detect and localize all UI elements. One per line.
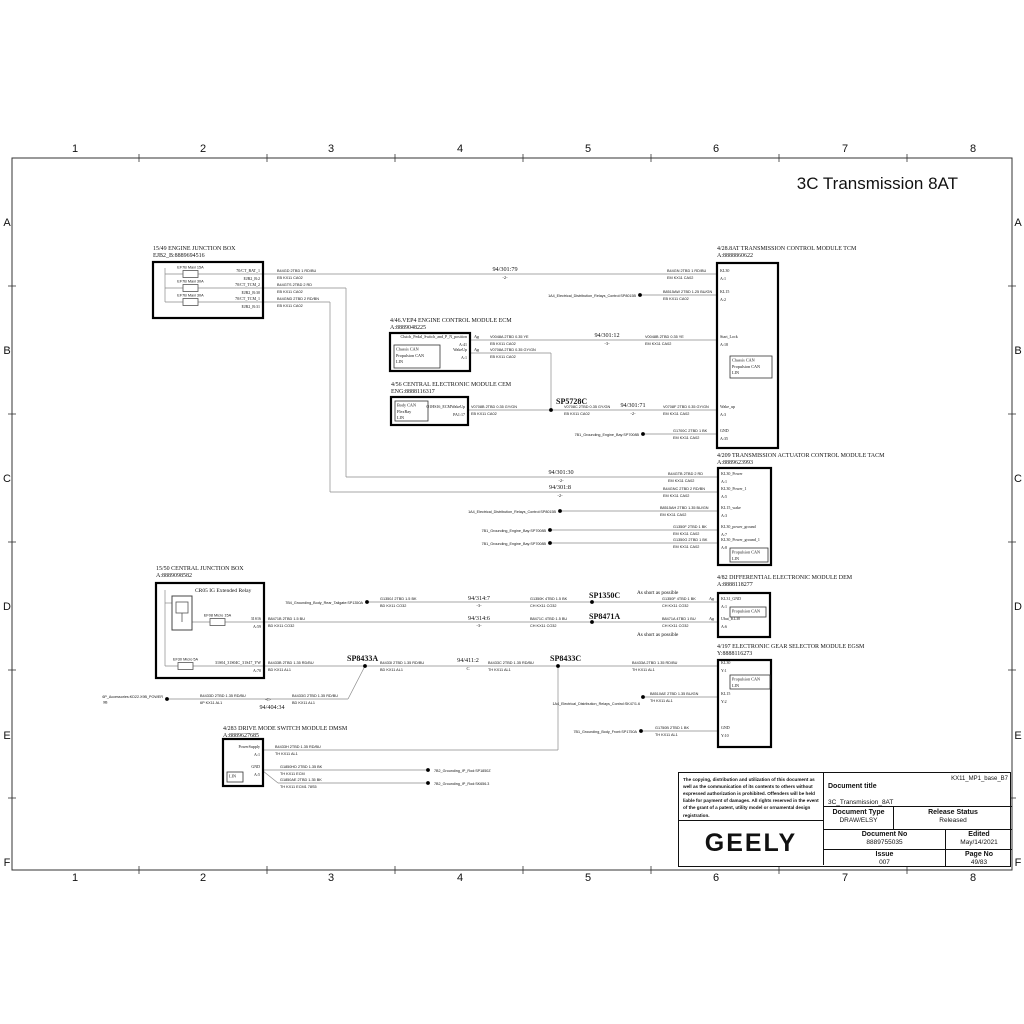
pin-name: 70/CT_TCM_1 [235,296,260,301]
pin-name: KL30_power_ground [721,524,756,529]
network-label: Chassis CAN [732,358,755,363]
network-label: Propulsion CAN [732,677,760,682]
network-label: LIN [229,774,236,779]
wire-name: G1750B 2TBD 1 BK [655,726,689,730]
wire-harness: EM KX11 CA02 [663,494,689,498]
grid-col-label: 1 [72,872,78,884]
wire-name: B4433G 2TBD 1.35 RD/BU [292,694,338,698]
page-no-value: 49/83 [946,859,1012,866]
splice-label: SP8433C [550,654,581,663]
source-label: 7B2_Grounding_IP_Rod:SK656.3 [434,782,489,786]
module-part-dem: A:8888118277 [717,582,753,588]
fuse-label: EF08 Micro 15A [204,614,232,618]
pin-number: A:6 [721,624,727,629]
fuse-label: EF7B Maxi 15A [177,266,204,270]
pin-name: KL30_Power [721,471,743,476]
source-label: 1A4_Electrical_Distribution_Relays_Contr… [548,294,636,298]
pin-number: A:5 [721,494,727,499]
grid-row-label: C [3,473,11,485]
junction-dot [639,729,643,733]
network-label: Propulsion CAN [396,353,424,358]
grid-col-label: 3 [328,872,334,884]
source-label: 1A4_Electrical_Distribution_Relays_Contr… [468,510,556,514]
pin-number: A:5 [254,772,260,777]
pin-name: KL15_wake [721,505,741,510]
pin-name: KL30 [720,268,729,273]
module-header-tcm: 4/28.8AT TRANSMISSION CONTROL MODULE TCM [717,246,857,252]
grid-row-label: C [1014,473,1022,485]
wire-harness: TH KX11 AL1 [650,699,673,703]
pin-name: WakeUp [453,347,467,352]
ag-contact-mark: Ag [708,616,715,621]
brand-logo: GEELY [679,821,824,865]
wire-harness: TH KX11 AL1 [275,752,298,756]
grid-row-label: E [1014,730,1021,742]
network-label: LIN [396,359,403,364]
pin-number: A:35 [720,436,728,441]
note-text: As short as possible [637,632,679,638]
network-label: Propulsion CAN [732,550,760,555]
junction-dot [365,600,369,604]
net-reference: 94/301:30 [548,469,573,476]
net-reference: 94/301:79 [492,266,517,273]
wire-name: B4433B 2TBD 1.35 RD/BU [268,661,314,665]
module-part-tacm: A:8889623993 [717,460,753,466]
grid-col-label: 7 [842,143,848,155]
grid-col-label: 7 [842,872,848,884]
wire-harness: EB KX11 CA02 [663,297,689,301]
document-title-label: Document title [828,783,877,790]
pin-number: A:1 [254,752,260,757]
release-status-cell: Release Status Released [894,807,1012,830]
ag-contact-mark: Ag [473,347,480,352]
grid-col-label: 1 [72,143,78,155]
grid-col-label: 2 [200,872,206,884]
wire-harness: EB KX11 CA02 [490,355,516,359]
wire-name: B44GTB 2TBD 2 RD [668,472,703,476]
junction-dot [363,664,367,668]
net-reference-sub: C [466,666,469,671]
issue-label: Issue [824,851,945,858]
net-reference-sub: -2- [558,478,564,483]
pin-name: PowerSupply [238,744,260,749]
issue-cell: Issue 007 [824,850,946,866]
wire-name: B8515AH 2TBD 1.35 BU/GN [660,506,709,510]
net-reference: 94/301:12 [594,332,619,339]
wire-name: G1350J 2TBD 1.5 BK [380,597,417,601]
wire-name: B4433C 2TBD 1.35 RD/BU [488,661,534,665]
wire-name: B4433A 2TBD 1.35 RD/BU [632,661,678,665]
junction-dot [641,695,645,699]
wire-harness: 6P KX11 AL1 [200,701,222,705]
junction-dot [641,432,645,436]
page: { "sheet": { "title": "3C Transmission 8… [0,0,1024,1024]
wire-harness: BD KX11 CO32 [268,624,294,628]
pin-number: A:1 [721,604,727,609]
net-reference: 94/411:2 [457,657,479,664]
edited-value: May/14/2021 [946,839,1012,846]
pin-name: Start_Lock [720,334,738,339]
wire-name: B8471A 4TBD 1 BU [662,617,696,621]
grid-col-label: 3 [328,143,334,155]
wire-harness: CH KX11 CO32 [530,604,557,608]
wire-harness: BD KX11 AL1 [292,701,315,705]
grid-row-label: E [3,730,10,742]
net-reference-sub: -2- [502,275,508,280]
fuse-symbol [210,619,225,626]
wire-name: V0708F 2TBD 0.35 GY/GN [663,405,709,409]
pin-name: KL31_GND [721,596,741,601]
wire-name: V0708C 2TBD 0.35 GY/GN [564,405,610,409]
grid-col-label: 8 [970,872,976,884]
page-no-label: Page No [946,851,1012,858]
wire-harness: BD KX11 AL1 [380,668,403,672]
network-label: FlexRay [397,409,412,414]
document-no-cell: Document No 8889755035 [824,830,946,850]
pin-name: Clutch_Pedal_Switch_and_P_N_position [401,334,467,339]
wire-name: B4433D 2TBD 1.35 RD/BU [200,694,246,698]
wire-harness: CH KX11 CO32 [530,624,557,628]
pin-name: KL30_Power_1 [721,486,747,491]
wire-segment [263,771,278,783]
net-reference-sub: -C- [265,697,272,702]
wire-name: G1350F 4TBD 1 BK [662,597,696,601]
wire-harness: BD KX11 AL1 [268,668,291,672]
pin-name: 31S16 [251,616,261,621]
relay-coil [176,602,188,613]
wire-harness: EM KX11 CA02 [660,513,686,517]
wire-harness: TH KX11 ECM1 78S5 [280,785,317,789]
source-label-pin: 9B [103,701,108,705]
module-header-ejb: 15/49 ENGINE JUNCTION BOX [153,246,236,252]
pin-number: EJB2_B:30 [242,290,260,295]
junction-dot [558,509,562,513]
wire-harness: EM KX11 CA02 [673,436,699,440]
net-reference: 94/314:6 [468,615,490,622]
wire-name: B8510AE 2TBD 1.35 BU/GN [650,692,699,696]
document-type-value: DRAW/ELSY [824,817,893,824]
splice-label: SP1350C [589,591,620,600]
splice-label: SP8471A [589,612,620,621]
net-reference-sub: -3- [476,603,482,608]
pin-name: 31S04_31S04C_31S47_YW [215,660,261,665]
pin-number: A:1 [720,276,726,281]
module-part-ecm: A:8889048225 [390,325,426,331]
pin-number: A:3 [721,513,727,518]
junction-dot [426,781,430,785]
pin-name: 70/CT_TCM_2 [235,282,260,287]
wire-name: V0048A 2TBD 0.35 YE [490,335,529,339]
issue-value: 007 [824,859,945,866]
document-title-value: 3C_Transmission_8AT [828,799,1008,806]
sheet-frame [12,158,1012,870]
source-label: 7B1_Grounding_Engine_Bay:SP7008B [482,529,547,533]
wire-segment [348,666,365,699]
junction-dot [556,664,560,668]
network-label: Body CAN [397,403,416,408]
variant-code: KX11_MP1_base_B7 [951,776,1008,782]
relay-label: CR05 IG Extended Relay [195,588,252,594]
network-label: LIN [732,370,739,375]
wire-name: G1850AE 2TBD 1.35 BK [280,778,322,782]
source-label: 6P_Accessories:KD22.X9B_POWER [102,695,163,699]
network-label: Chassis CAN [396,347,419,352]
wire-name: B4433I 2TBD 1.35 RD/BU [380,661,424,665]
fuse-label: EF30 Micro 5A [173,658,199,662]
release-status-value: Released [894,817,1012,824]
pin-number: A:18 [720,342,728,347]
net-reference: 94/404:34 [259,704,284,711]
grid-col-label: 4 [457,872,463,884]
pin-number: A:70 [253,668,261,673]
junction-dot [426,768,430,772]
junction-dot [165,697,169,701]
grid-row-label: F [4,857,11,869]
wire-name: B44GN 2TBD 1 RD/BU [667,269,707,273]
fuse-symbol [183,285,198,292]
wire-harness: EB KX11 CA02 [277,290,303,294]
pin-number: A:1 [721,479,727,484]
wire-name: B4433H 2TBD 1.35 RD/BU [275,745,321,749]
network-label: LIN [732,556,739,561]
wire-harness: EM KX11 CA02 [673,545,699,549]
pin-name: GND [251,764,260,769]
wire-harness: EB KX11 CA02 [277,276,303,280]
module-header-dem: 4/82 DIFFERENTIAL ELECTRONIC MODULE DEM [717,575,853,581]
wire-name: B44GND 2TBD 2 RD/BN [277,297,319,301]
grid-row-label: B [1014,345,1021,357]
module-header-cem: 4/56 CENTRAL ELECTRONIC MODULE CEM [391,382,512,388]
grid-row-label: D [1014,601,1022,613]
document-no-value: 8889755035 [824,839,945,846]
pin-name: KL15 [720,289,729,294]
wire-harness: TH KX11 AL1 [632,668,655,672]
ag-contact-mark: Ag [708,596,715,601]
junction-dot [590,600,594,604]
pin-name: GND [720,428,729,433]
grid-row-label: A [1014,217,1022,229]
module-header-cjb: 15/50 CENTRAL JUNCTION BOX [156,566,244,572]
network-label: LIN [397,415,404,420]
pin-name: KL15 [721,691,730,696]
grid-col-label: 5 [585,143,591,155]
fuse-symbol [178,663,193,670]
pin-number: Y:10 [721,733,729,738]
title-block: The copying, distribution and utilizatio… [678,772,1011,867]
source-label: 7B2_Grounding_IP_Rod:SP1850Z [434,769,491,773]
document-title-cell: Document title KX11_MP1_base_B7 3C_Trans… [824,773,1012,807]
grid-row-label: B [3,345,10,357]
wire-name: B44GD 2TBD 1 RD/BU [277,269,317,273]
pin-number: A:59 [253,624,261,629]
module-part-tcm: A:8888860622 [717,253,753,259]
junction-dot [549,408,553,412]
wire-name: G1350G 2TBD 1 BK [673,538,708,542]
junction-dot [548,541,552,545]
junction-dot [638,293,642,297]
net-reference: 94/301:8 [549,484,571,491]
wire-harness: TH KX11 AL1 [488,668,511,672]
wire-harness: CH KX11 CO32 [662,624,689,628]
page-no-cell: Page No 49/83 [946,850,1012,866]
grid-col-label: 2 [200,143,206,155]
module-part-cem: ENG:8888116317 [391,389,435,395]
network-label: LIN [732,683,739,688]
document-no-label: Document No [824,831,945,838]
net-reference-sub: -2- [630,411,636,416]
pin-number: EJB2_B:31 [242,304,260,309]
wire-harness: EM KX11 CA02 [668,479,694,483]
pin-name: Wake_up [720,404,735,409]
edited-label: Edited [946,831,1012,838]
module-header-egsm: 4/197 ELECTRONIC GEAR SELECTOR MODULE EG… [717,644,865,650]
net-reference-sub: -3- [476,623,482,628]
wire-harness: EB KX11 CA02 [471,412,497,416]
pin-number: EJB2_B:2 [244,276,260,281]
wire-harness: CH KX11 CO32 [662,604,689,608]
pin-number: A:8 [721,545,727,550]
wire-name: V0708B 2TBD 0.35 GY/GN [471,405,517,409]
source-label: 7B1_Grounding_Engine_Bay:SP7008B [575,433,640,437]
fuse-label: EF7B Maxi 30A [177,280,204,284]
junction-dot [548,528,552,532]
wire-name: B44GNC 2TBD 2 RD/BN [663,487,705,491]
source-label: 7B1_Grounding_Body_Front:SP1750A [573,730,637,734]
wire-name: G1350K 4TBD 1.5 BK [530,597,568,601]
pin-name: O1HS16_ECMWakeUp [426,404,465,409]
network-label: Propulsion CAN [732,609,760,614]
pin-number: Y:1 [721,668,727,673]
wire-name: G1700C 2TBD 1 BK [673,429,708,433]
note-text: As short as possible [637,590,679,596]
pin-name: GND [721,725,730,730]
wire-harness: EM KX11 CA02 [663,412,689,416]
module-header-dmsm: 4/283 DRIVE MODE SWITCH MODULE DMSM [223,726,348,732]
wire-name: B44GTS 2TBD 2 RD [277,283,312,287]
net-reference-sub: -2- [557,493,563,498]
grid-col-label: 4 [457,143,463,155]
wire-name: B8515AW 2TBD 1.25 BU/GN [663,290,712,294]
wire-name: G1850HD 2TBD 1.35 BK [280,765,323,769]
net-reference-sub: -3- [604,341,610,346]
grid-col-label: 6 [713,143,719,155]
release-status-label: Release Status [894,809,1012,816]
grid-col-label: 5 [585,872,591,884]
wire-name: G1350F 2TBD 1 BK [673,525,707,529]
grid-col-label: 8 [970,143,976,155]
grid-col-label: 6 [713,872,719,884]
document-type-cell: Document Type DRAW/ELSY [824,807,894,830]
module-part-ejb: EJB2_B:8889694516 [153,253,205,259]
legal-notice: The copying, distribution and utilizatio… [679,773,824,821]
wire-harness: EB KX11 CA02 [490,342,516,346]
document-type-label: Document Type [824,809,893,816]
pin-number: PA1:17 [453,412,465,417]
fuse-label: EF7B Maxi 30A [177,294,204,298]
wire-harness: EM KX11 CA02 [645,342,671,346]
net-reference: 94/301:71 [620,402,645,409]
grid-row-label: F [1015,857,1022,869]
net-reference: 94/314:7 [468,595,490,602]
wire-name: B8471B 2TBD 1.5 BU [268,617,305,621]
pin-number: A:3 [720,412,726,417]
pin-name: KL30_Power_ground_1 [721,537,760,542]
module-header-tacm: 4/209 TRANSMISSION ACTUATOR CONTROL MODU… [717,453,885,459]
wire-name: V0708A 2TBD 0.35 GY/GN [490,348,536,352]
fuse-symbol [183,271,198,278]
source-label: 7B4_Grounding_Body_Rear_Tailgate:SP1350A [285,601,363,605]
edited-cell: Edited May/14/2021 [946,830,1012,850]
pin-name: KL30 [721,660,730,665]
wire-harness: EB KX11 CA02 [564,412,590,416]
module-part-cjb: A:8889098582 [156,573,192,579]
wire-name: B8471C 4TBD 1.5 BU [530,617,567,621]
source-label: 1A4_Electrical_Distribution_Relays_Contr… [552,702,640,706]
wire-harness: EM KX11 CA02 [673,532,699,536]
module-part-egsm: Y:8888116273 [717,651,752,657]
wire-harness: TH KX11 ECM [280,772,305,776]
pin-number: A:1 [461,355,467,360]
wiring-diagram: 1122334455667788AABBCCDDEEFF15/49 ENGINE… [0,0,1024,1024]
wire-harness: EM KX11 CA02 [667,276,693,280]
wire-harness: TH KX11 AL1 [655,733,678,737]
source-label: 7B1_Grounding_Engine_Bay:SP7008B [482,542,547,546]
fuse-symbol [183,299,198,306]
pin-number: Y:2 [721,699,727,704]
splice-label: SP8433A [347,654,378,663]
network-label: Propulsion CAN [732,364,760,369]
wire-name: V0048B 2TBD 0.35 YE [645,335,684,339]
ag-contact-mark: Ag [473,334,480,339]
module-header-ecm: 4/46.VEP4 ENGINE CONTROL MODULE ECM [390,318,512,324]
pin-number: A:2 [720,297,726,302]
wire-harness: EB KX11 CA02 [277,304,303,308]
grid-row-label: A [3,217,11,229]
grid-row-label: D [3,601,11,613]
pin-name: 70/CT_BAT_1 [236,268,260,273]
wire-harness: BD KX11 CO32 [380,604,406,608]
